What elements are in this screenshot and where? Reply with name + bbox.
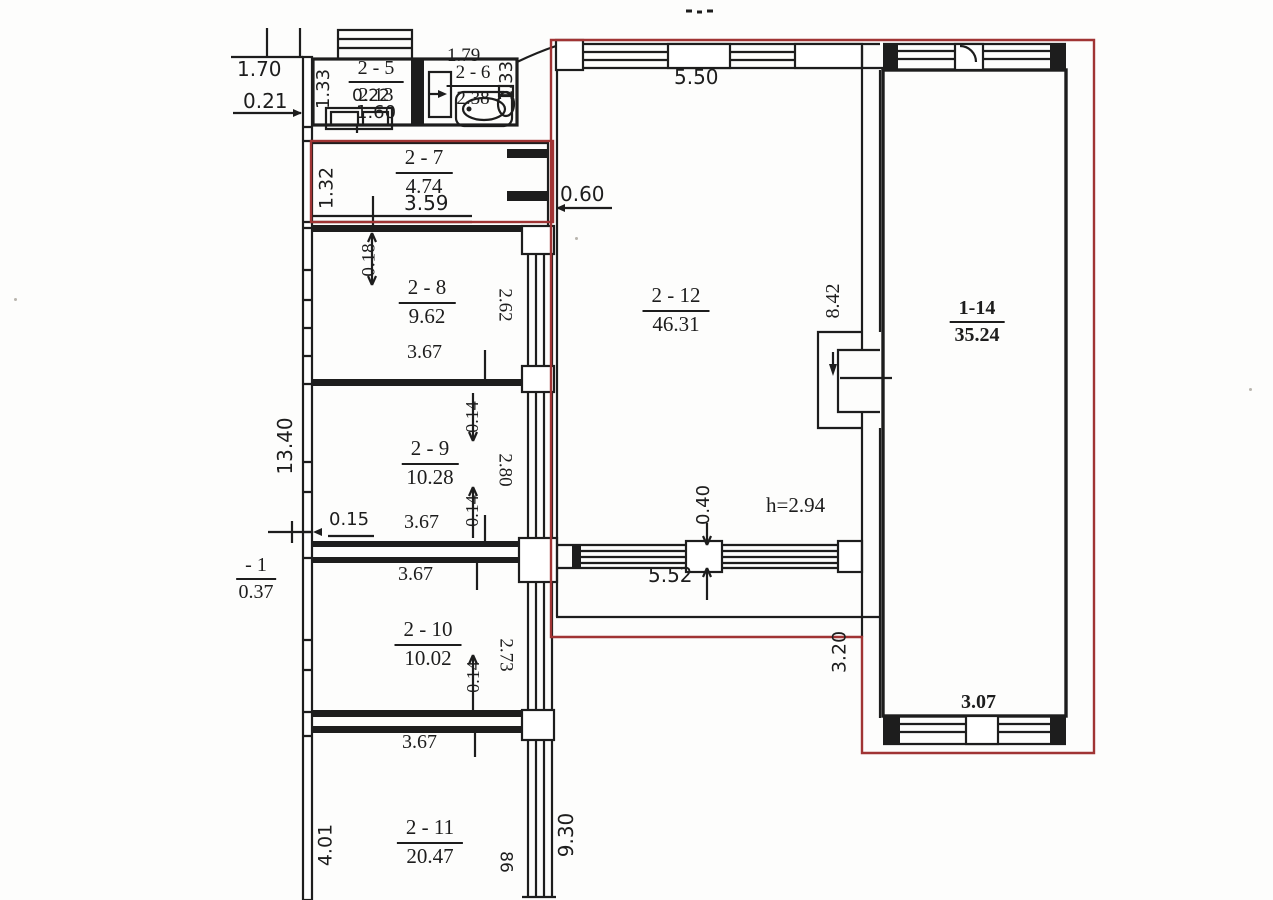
room-area: 2.38 [447,87,500,109]
scan-speck [1249,388,1252,391]
floor-plan-page: 2 - 5 2.13 2 - 6 2.38 2 - 7 4.74 2 - 8 9… [0,0,1273,900]
scan-speck [14,298,17,301]
scan-speck [575,237,578,240]
dim-0-40: 0.40 [695,485,713,525]
room-number: 2 - 5 [349,57,404,83]
room-area: 35.24 [950,323,1005,346]
room-number: 2 - 8 [399,276,456,304]
dim-3-67-b: 3.67 [404,512,439,532]
dim-3-67-d: 3.67 [402,732,437,752]
room-label-2-10: 2 - 10 10.02 [395,618,462,670]
dim-2-80: 2.80 [496,453,515,486]
room-number: 2 - 9 [402,437,459,465]
dim-8-42: 8.42 [823,284,843,319]
dim-1-60: 1.60 [356,104,396,122]
room-label-2-9: 2 - 9 10.28 [402,437,459,489]
dim-1-32: 1.32 [318,167,337,209]
cropped-top-text [686,11,713,12]
dim-3-07: 3.07 [961,692,996,712]
room-number: 2 - 12 [643,284,710,312]
room-area: 0.37 [236,580,276,603]
dim-13-40: 13.40 [275,417,295,474]
floorplan-linework [0,0,1273,900]
room-area: 10.28 [402,465,459,490]
room-number: - 1 [236,554,276,580]
dim-0-60: 0.60 [560,184,605,204]
room-label-2-12: 2 - 12 46.31 [643,284,710,336]
dim-0-18: 0.18 [360,243,379,276]
room-label-2-11: 2 - 11 20.47 [397,816,463,868]
dim-3-67-a: 3.67 [407,342,442,362]
dim-height-2-94: h=2.94 [766,495,825,516]
dim-3-59: 3.59 [404,193,449,213]
room-area: 46.31 [643,312,710,337]
dim-2-73: 2.73 [497,638,516,671]
dim-86: 86 [497,851,514,873]
room-label-basement: - 1 0.37 [236,554,276,604]
dim-1-70: 1.70 [237,59,282,79]
room-label-2-6: 2 - 6 2.38 [447,62,500,110]
dim-3-67-c: 3.67 [398,564,433,584]
room-label-1-14: 1-14 35.24 [950,297,1005,347]
walls [231,11,1066,900]
dim-1-79: 1.79 [447,46,480,65]
room-label-2-8: 2 - 8 9.62 [399,276,456,328]
room-number: 2 - 7 [396,146,453,174]
room-area: 20.47 [397,844,463,869]
dim-1-33-right: 1.33 [498,61,516,101]
dim-9-30: 9.30 [556,813,576,858]
dim-0-14-c: 0.14 [464,661,482,693]
room-number: 2 - 10 [395,618,462,646]
room-area: 10.02 [395,646,462,671]
dim-0-21: 0.21 [243,91,288,111]
dim-4-01: 4.01 [317,824,336,866]
dim-0-14-a: 0.14 [463,401,481,433]
dim-0-15: 0.15 [329,511,369,529]
entrance-door [818,332,892,428]
dim-5-50: 5.50 [674,67,719,87]
dim-0-14-b: 0.14 [463,495,481,527]
room-number: 2 - 11 [397,816,463,844]
room-area: 9.62 [399,304,456,329]
room-number: 1-14 [950,297,1005,323]
dim-2-62: 2.62 [496,288,515,321]
dim-5-52: 5.52 [648,565,693,585]
dim-3-20: 3.20 [831,631,850,673]
dim-1-33-left: 1.33 [315,69,333,109]
